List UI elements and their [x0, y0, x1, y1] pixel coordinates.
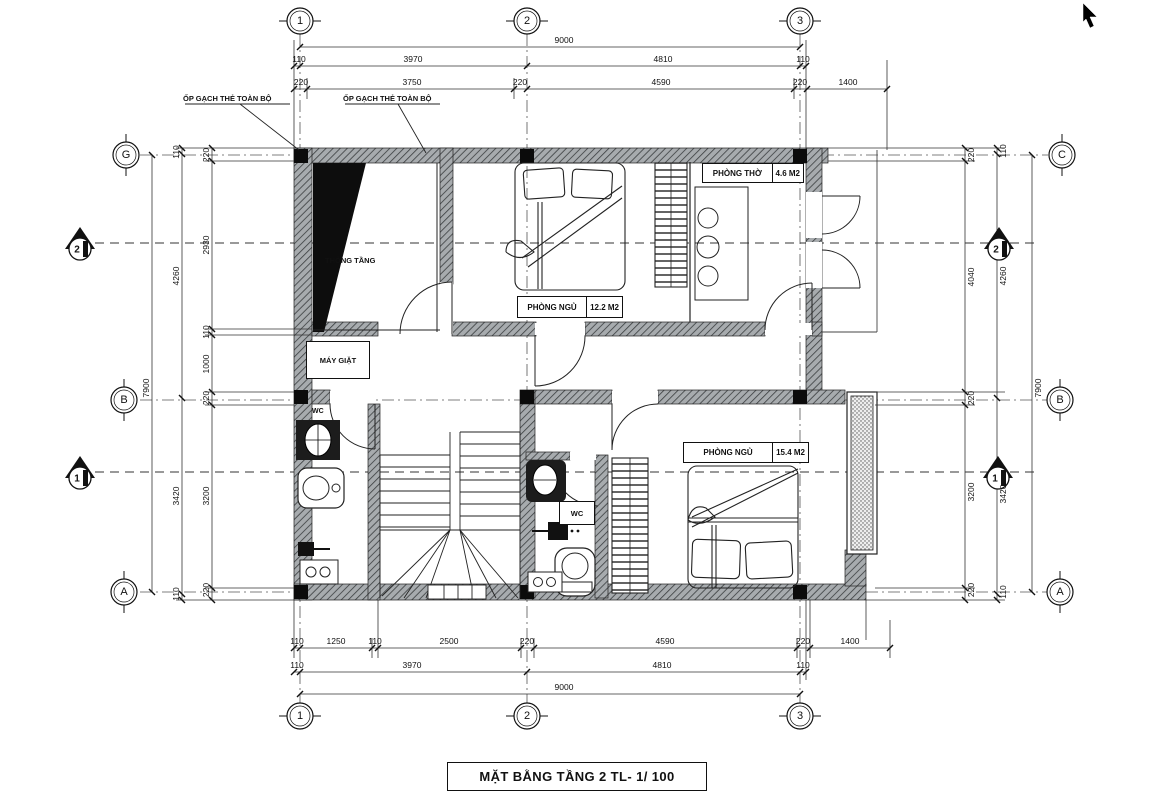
note-leaders — [185, 104, 440, 153]
room-label-bedroom1: PHÒNG NGỦ 12.2 M2 — [517, 296, 623, 318]
dim-label: 3200 — [966, 483, 976, 502]
room-label-void: THÔNG TẦNG — [325, 256, 375, 265]
dim-label: 110 — [998, 144, 1008, 158]
dim-label: 220 — [966, 391, 976, 405]
bed-bottom — [688, 466, 798, 588]
section-cut-lines — [95, 243, 1040, 472]
grid-bubble-left-g: G — [122, 149, 131, 161]
room-label-wc2: WC — [559, 501, 595, 525]
drawing-title: MẶT BẰNG TẦNG 2 TL- 1/ 100 — [479, 769, 674, 784]
dim-label: 9000 — [555, 682, 574, 692]
grid-bubble-right-a: A — [1056, 586, 1063, 598]
tile-note-2: ỐP GẠCH THẺ TOÀN BỘ — [343, 94, 431, 103]
dim-label: 220 — [966, 148, 976, 162]
dim-label: 1400 — [839, 77, 858, 87]
grid-bubble-top-3: 3 — [797, 15, 803, 27]
room-label-bedroom2: PHÒNG NGỦ 15.4 M2 — [683, 442, 809, 463]
dim-label: 3200 — [201, 487, 211, 506]
tile-note-1: ỐP GẠCH THẺ TOÀN BỘ — [183, 94, 271, 103]
room-label-laundry: MÁY GIẶT — [306, 341, 370, 379]
dim-label: 220 — [520, 636, 534, 646]
grid-bubble-bottom-3: 3 — [797, 710, 803, 722]
dim-label: 220 — [513, 77, 527, 87]
dim-label: 4810 — [653, 660, 672, 670]
dim-label: 220 — [201, 583, 211, 597]
wardrobe-top — [655, 163, 687, 287]
dim-label: 3420 — [998, 485, 1008, 504]
staircase — [380, 432, 520, 599]
dim-label: 9000 — [555, 35, 574, 45]
dim-label: 220 — [966, 583, 976, 597]
grid-bubble-right-c: C — [1058, 149, 1066, 161]
dim-label: 4260 — [171, 267, 181, 286]
dim-label: 220 — [793, 77, 807, 87]
dim-label: 110 — [201, 325, 211, 339]
balcony-top-right — [822, 150, 877, 332]
dim-label: 4590 — [656, 636, 675, 646]
section-marker-label: 1 — [992, 474, 998, 485]
grid-bubble-top-1: 1 — [297, 15, 303, 27]
dim-label: 7900 — [1033, 379, 1043, 398]
dim-label: 2930 — [201, 236, 211, 255]
wc2-fixtures — [526, 460, 595, 596]
dim-label: 4040 — [966, 268, 976, 287]
dim-label: 110 — [290, 660, 304, 670]
floor-plan-canvas: ỐP GẠCH THẺ TOÀN BỘ ỐP GẠCH THẺ TOÀN BỘ … — [0, 0, 1150, 803]
dim-label: 220 — [201, 148, 211, 162]
dim-label: 110 — [998, 585, 1008, 599]
section-marker-label: 2 — [993, 245, 999, 256]
dim-label: 220 — [201, 391, 211, 405]
dim-label: 220 — [796, 636, 810, 646]
dim-label: 110 — [171, 145, 181, 159]
dim-label: 220 — [294, 77, 308, 87]
grid-bubble-bottom-1: 1 — [297, 710, 303, 722]
dim-label: 4260 — [998, 267, 1008, 286]
dim-label: 4810 — [654, 54, 673, 64]
balcony-window — [847, 392, 877, 554]
dim-label: 1250 — [327, 636, 346, 646]
void-wedge — [313, 163, 440, 332]
dim-label: 110 — [368, 636, 382, 646]
grid-bubble-bottom-2: 2 — [524, 710, 530, 722]
floor-plan-drawing — [0, 0, 1150, 803]
dim-label: 3420 — [171, 487, 181, 506]
dim-label: 110 — [796, 660, 810, 670]
dim-label: 1000 — [201, 355, 211, 374]
grid-lines — [140, 34, 1048, 704]
dim-label: 3750 — [403, 77, 422, 87]
grid-bubble-top-2: 2 — [524, 15, 530, 27]
dim-label: 3970 — [403, 660, 422, 670]
dim-label: 110 — [171, 587, 181, 601]
dim-label: 110 — [290, 636, 304, 646]
grid-bubble-right-b: B — [1056, 394, 1063, 406]
cursor-icon — [1083, 3, 1097, 28]
room-label-wc1: WC — [312, 408, 324, 415]
grid-bubble-left-b: B — [120, 394, 127, 406]
dim-label: 1400 — [841, 636, 860, 646]
dim-label: 2500 — [440, 636, 459, 646]
section-marker-label: 1 — [74, 474, 80, 485]
room-label-altar: PHÒNG THỜ 4.6 M2 — [702, 163, 804, 183]
dim-label: 4590 — [652, 77, 671, 87]
dim-label: 3970 — [404, 54, 423, 64]
wardrobe-bottom — [612, 458, 648, 593]
section-marker-label: 2 — [74, 245, 80, 256]
drawing-title-box: MẶT BẰNG TẦNG 2 TL- 1/ 100 — [447, 762, 707, 791]
dim-label: 110 — [292, 54, 306, 64]
grid-bubble-left-a: A — [120, 586, 127, 598]
bed-top — [506, 163, 625, 290]
dim-label: 7900 — [141, 379, 151, 398]
dim-label: 110 — [796, 54, 810, 64]
